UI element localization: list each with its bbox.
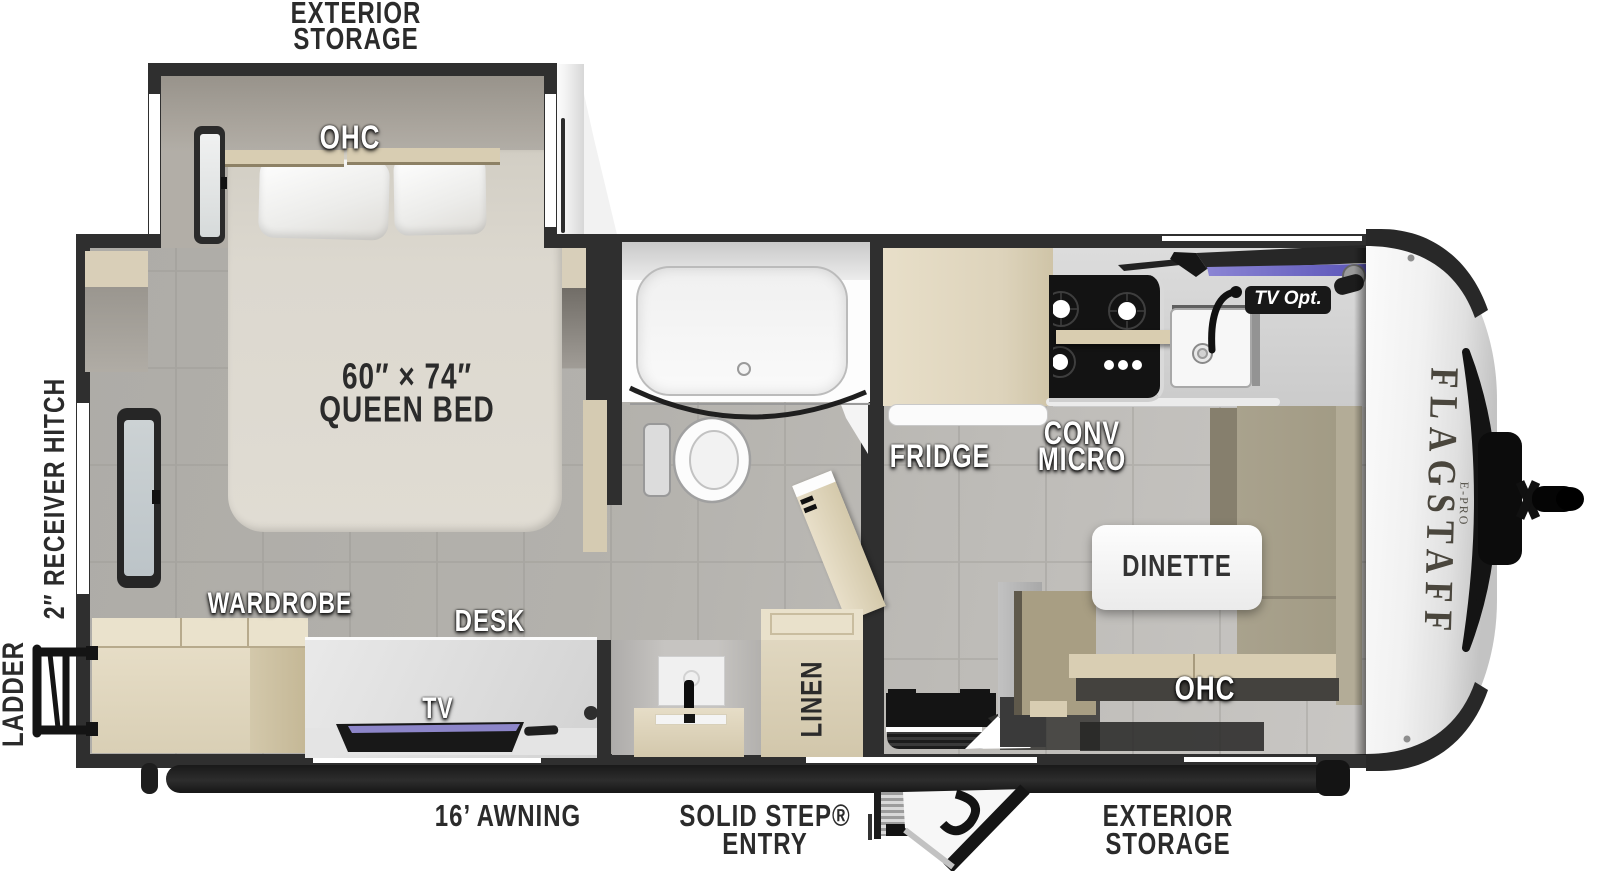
svg-text:E-PRO: E-PRO xyxy=(1456,482,1471,527)
